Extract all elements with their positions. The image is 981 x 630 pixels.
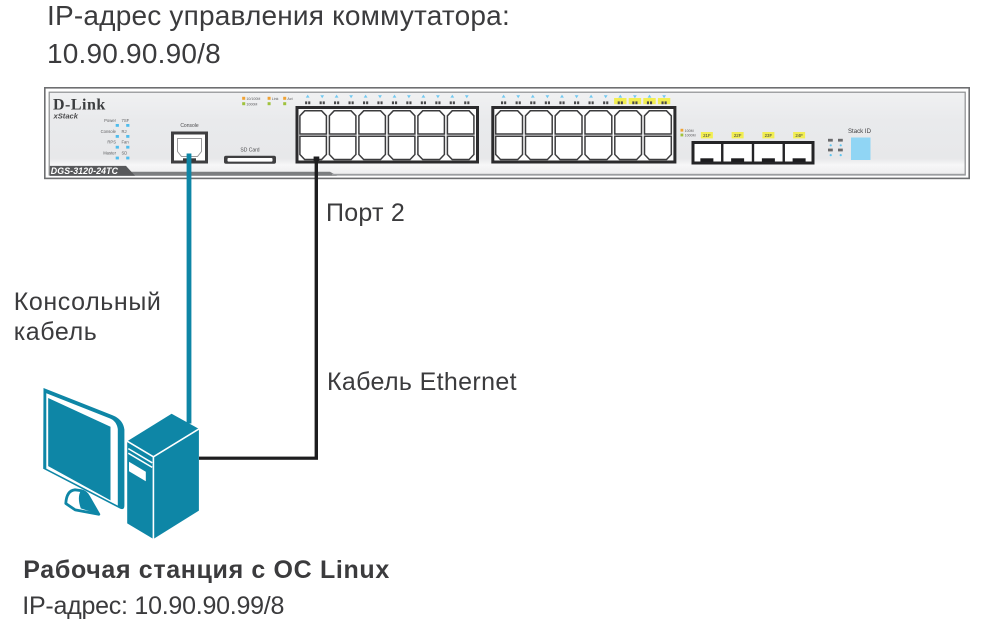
svg-text:23F: 23F [765,133,773,138]
svg-text:24F: 24F [795,133,803,138]
svg-text:Stack ID: Stack ID [848,128,872,135]
svg-text:1000M: 1000M [246,103,257,107]
svg-text:DGS-3120-24TC: DGS-3120-24TC [51,166,119,176]
svg-text:1000M: 1000M [685,134,696,138]
svg-text:Fan: Fan [122,140,130,145]
svg-text:Link: Link [272,97,279,101]
svg-text:RPS: RPS [107,140,116,145]
svg-text:Console: Console [180,123,199,129]
svg-text:22F: 22F [734,133,742,138]
svg-text:Console: Console [101,129,117,134]
svg-text:Power: Power [104,118,116,123]
svg-text:xStack: xStack [53,112,79,121]
svg-text:Master: Master [103,150,116,155]
svg-text:7SF: 7SF [122,118,130,123]
svg-text:SD Card: SD Card [240,148,259,154]
svg-text:10/100M: 10/100M [246,97,260,101]
svg-text:RJ: RJ [122,129,127,134]
svg-text:SD: SD [122,150,128,155]
svg-text:100M: 100M [685,129,694,133]
svg-text:Act: Act [287,97,292,101]
svg-text:21F: 21F [703,133,711,138]
